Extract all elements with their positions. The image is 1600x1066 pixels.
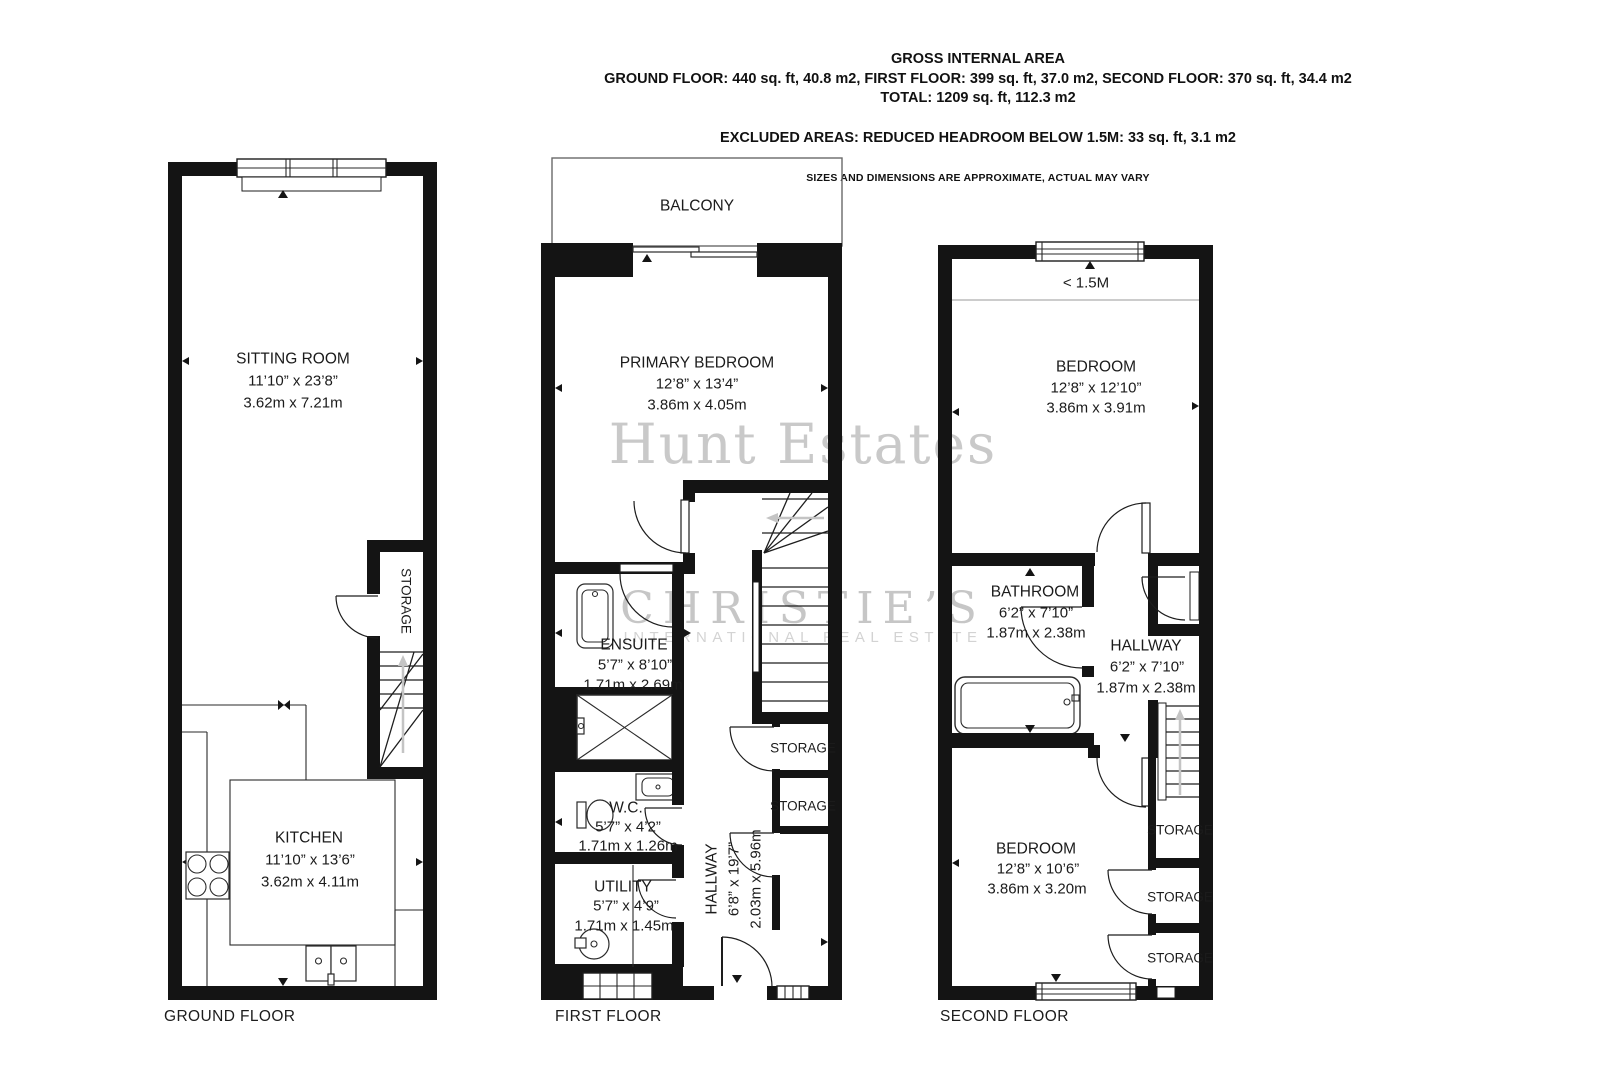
second-bottom-window: [1036, 974, 1136, 1000]
kitchen-dims-metric: 3.62m x 4.11m: [261, 874, 359, 891]
second-floor-plan: < 1.5M BEDROOM 12’8” x 12’10” 3.86m x 3.…: [938, 242, 1213, 1025]
sitting-room-dims-imperial: 11’10” x 23’8”: [248, 373, 338, 390]
dim-tick-up: [642, 254, 652, 262]
sink: [306, 946, 356, 985]
ensuite-door-leaf: [620, 564, 673, 572]
ground-window: [237, 159, 386, 191]
ground-floor-caption: GROUND FLOOR: [164, 1008, 295, 1025]
second-floor-caption: SECOND FLOOR: [940, 1008, 1069, 1025]
dim-arrow-left: [555, 629, 562, 637]
front-door-opening: [714, 986, 767, 1000]
first-bottom-window-right: [777, 986, 809, 999]
wall-stub: [683, 553, 695, 562]
dim-arrow-right: [416, 858, 423, 866]
utility-dims-imperial: 5’7” x 4’9”: [593, 898, 659, 915]
primary-bedroom-door: [634, 500, 689, 553]
dim-arrow-left: [952, 408, 959, 416]
hob: [186, 852, 229, 899]
bedroom-rear-dims-imperial: 12’8” x 12’10”: [1051, 380, 1142, 397]
dim-arrow-right: [1192, 402, 1199, 410]
first-storage-upper-label: STORAGE: [770, 741, 836, 756]
primary-bedroom-dims-imperial: 12’8” x 13’4”: [656, 376, 739, 393]
ground-storage-label: STORAGE: [399, 568, 414, 634]
ensuite-label: ENSUITE: [600, 637, 667, 654]
floorplans-svg: SITTING ROOM 11’10” x 23’8” 3.62m x 7.21…: [0, 0, 1600, 1066]
sitting-room-dims-metric: 3.62m x 7.21m: [243, 395, 342, 412]
dim-arrow-left: [555, 818, 562, 826]
dim-tick-down: [278, 978, 288, 986]
bottom-opening: [1157, 987, 1175, 998]
shower: [577, 695, 684, 760]
first-bottom-window-left: [583, 973, 652, 999]
bathroom-label: BATHROOM: [991, 584, 1079, 601]
first-hallway-dims-metric: 2.03m x 5.96m: [748, 829, 765, 928]
bedroom-rear-door: [1097, 503, 1150, 553]
kitchen-label: KITCHEN: [275, 830, 343, 847]
bedroom-front-dims-imperial: 12’8” x 10’6”: [997, 861, 1080, 878]
bathroom-dims-imperial: 6’2” x 7’10”: [999, 605, 1073, 622]
dim-arrow-left: [555, 384, 562, 392]
kitchen-dims-imperial: 11’10” x 13’6”: [265, 852, 355, 869]
ground-stairs: [380, 652, 423, 767]
dim-arrow-left: [952, 859, 959, 867]
ensuite-door-swing: [620, 574, 673, 627]
bedroom-rear-wall: [938, 553, 1095, 566]
dim-tick-up: [1085, 261, 1095, 269]
first-right-wall: [828, 243, 842, 1000]
second-hallway-dims-metric: 1.87m x 2.38m: [1096, 680, 1195, 697]
first-left-wall: [541, 243, 555, 1000]
wc-dims-imperial: 5’7” x 4’2”: [595, 819, 661, 836]
hallway-closet: [1142, 566, 1199, 636]
balcony-sliding-door: [633, 247, 757, 257]
bedroom-rear-wall: [1148, 553, 1213, 566]
first-floor-caption: FIRST FLOOR: [555, 1008, 662, 1025]
bathroom-dims-metric: 1.87m x 2.38m: [986, 625, 1085, 642]
bedroom-front-door: [1097, 758, 1150, 807]
first-floor-plan: BALCONY: [541, 158, 842, 1025]
sitting-room-label: SITTING ROOM: [236, 351, 350, 368]
balcony-label: BALCONY: [660, 198, 734, 215]
first-hallway-label: HALLWAY: [704, 843, 721, 914]
second-storage-1-label: STORAGE: [1147, 823, 1213, 838]
ensuite-dims-imperial: 5’7” x 8’10”: [598, 657, 672, 674]
wall-stub: [1088, 745, 1100, 758]
stairwell-bottom-wall: [752, 712, 842, 724]
primary-bedroom-dims-metric: 3.86m x 4.05m: [647, 397, 746, 414]
storage-door-swing: [336, 596, 378, 638]
bedroom-rear-dims-metric: 3.86m x 3.91m: [1046, 400, 1145, 417]
utility-label: UTILITY: [594, 879, 652, 896]
dim-arrow-left: [182, 357, 189, 365]
bedroom-partition-wall: [683, 480, 842, 493]
bedroom-front-label: BEDROOM: [996, 841, 1076, 858]
ensuite-dims-metric: 1.71m x 2.69m: [583, 677, 682, 694]
banister: [753, 582, 759, 672]
floorplan-page: Hunt Estates CHRISTIE’S INTERNATIONAL RE…: [0, 0, 1600, 1066]
primary-bedroom-label: PRIMARY BEDROOM: [620, 355, 774, 372]
second-top-window: [1036, 242, 1144, 261]
bedroom-front-dims-metric: 3.86m x 3.20m: [987, 881, 1086, 898]
bathtub: [955, 677, 1080, 734]
first-stairs: [762, 493, 828, 701]
ground-storage-stairs: [336, 540, 437, 779]
second-storage-2-label: STORAGE: [1147, 890, 1213, 905]
dim-arrow-right: [416, 357, 423, 365]
bedroom-rear-label: BEDROOM: [1056, 359, 1136, 376]
first-storage-lower-label: STORAGE: [770, 799, 836, 814]
utility-dims-metric: 1.71m x 1.45m: [574, 918, 673, 935]
dim-arrow-right: [821, 384, 828, 392]
first-hallway-dims-imperial: 6’8” x 19’7”: [726, 842, 743, 916]
front-door: [722, 937, 772, 987]
wc-dims-metric: 1.71m x 1.26m: [578, 838, 677, 855]
second-hallway-label: HALLWAY: [1110, 638, 1181, 655]
second-storage-3-label: STORAGE: [1147, 951, 1213, 966]
dim-arrow-right: [684, 629, 691, 637]
wc-label: W.C.: [609, 800, 643, 817]
dim-tick-down: [1120, 734, 1130, 742]
ground-floor-plan: SITTING ROOM 11’10” x 23’8” 3.62m x 7.21…: [164, 159, 437, 1025]
second-hallway-dims-imperial: 6’2” x 7’10”: [1110, 659, 1184, 676]
dim-arrow-right: [821, 938, 828, 946]
headroom-note: < 1.5M: [1063, 275, 1109, 292]
